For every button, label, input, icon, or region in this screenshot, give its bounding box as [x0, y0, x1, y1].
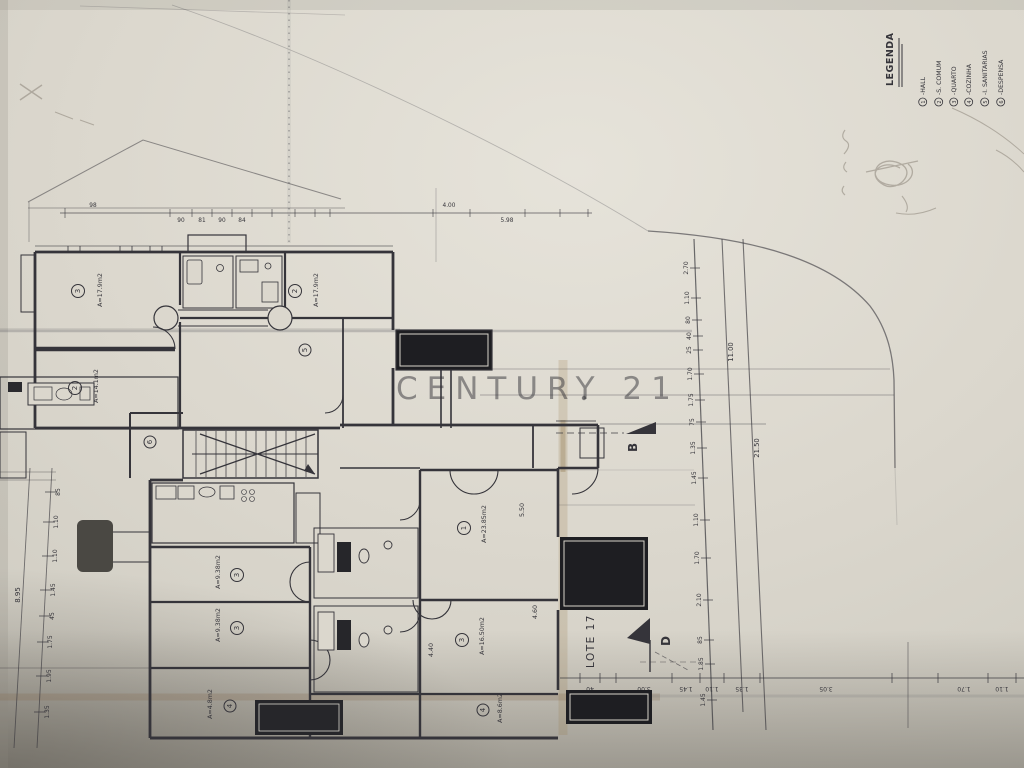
dim-right-12: 2.10 — [696, 593, 703, 607]
dim-right-15: 1.45 — [700, 693, 707, 707]
room-area: A=17.9m2 — [97, 273, 104, 307]
dim-left-0: 85 — [55, 488, 62, 496]
room-area: A=14.1m2 — [93, 369, 100, 403]
section-marker-b-label: B — [626, 443, 640, 452]
dim-top-0: 98 — [89, 203, 97, 209]
balcony-black-right-2 — [566, 690, 652, 724]
dim-top-3: 90 — [218, 218, 226, 224]
dim-top-6: 5.98 — [501, 218, 514, 224]
legend-item-label: -DESPENSA — [998, 59, 1005, 95]
room-area: A=23.85m2 — [481, 505, 488, 543]
dim-left-2: 1.10 — [52, 549, 59, 563]
legend-item-number: 5 — [983, 100, 989, 103]
legend-item-label: -S. COMUM — [936, 61, 943, 96]
dim-left-4: 45 — [49, 612, 56, 620]
dim-bottom-3: 1.10 — [705, 685, 719, 692]
room-number: 3 — [458, 638, 466, 642]
legend-item-number: 1 — [921, 100, 927, 103]
room-number: 2 — [71, 386, 79, 390]
dim-bottom-6: 1.70 — [957, 685, 971, 692]
dim-right-7: 75 — [689, 418, 696, 426]
room-area: A=9.38m2 — [215, 555, 222, 589]
legend-item-label: -QUARTO — [951, 66, 958, 95]
room-number: 2 — [291, 289, 299, 293]
dim-bottom-5: 3.05 — [819, 685, 833, 692]
dim-left-1: 1.10 — [53, 515, 60, 529]
road-dim-1100: 11.00 — [727, 342, 735, 361]
room-number: 1 — [460, 526, 468, 530]
dim-right-3: 40 — [686, 332, 693, 340]
dim-right-13: 85 — [697, 636, 704, 644]
dim-right-1: 1.10 — [684, 291, 691, 305]
dim-right-5: 1.70 — [687, 367, 694, 381]
room-number: 3 — [74, 289, 82, 293]
dim-left-7: 1.35 — [44, 705, 51, 719]
room-number: 3 — [233, 573, 241, 577]
dim-bottom-2: 1.45 — [679, 685, 693, 692]
room-number: 4 — [226, 703, 234, 708]
legend-item-label: -HALL — [920, 76, 927, 95]
room-number: 4 — [479, 707, 487, 712]
dim-top-2: 81 — [198, 218, 206, 224]
room-area: A=9.38m2 — [215, 608, 222, 642]
dim-right-11: 1.70 — [694, 551, 701, 565]
dim-right-4: 25 — [686, 346, 693, 354]
lot-label: LOTE 17 — [585, 614, 597, 668]
dim-left-total: 8.95 — [14, 587, 22, 603]
room-area: A=17.9m2 — [313, 273, 320, 307]
room-area: A=4.8m2 — [207, 689, 214, 719]
dim-left-5: 1.75 — [47, 635, 54, 649]
dim-right-0: 2.70 — [683, 261, 690, 275]
section-marker-d-label: D — [659, 636, 673, 646]
road-dim-2150: 21.50 — [753, 438, 761, 457]
room-area: A=16.50m2 — [479, 617, 486, 655]
dim-left-6: 1.95 — [46, 669, 53, 683]
room-dim: 5.50 — [519, 503, 526, 517]
dim-left-3: 1.45 — [50, 583, 57, 597]
room-dim: 4.60 — [532, 605, 539, 619]
dim-right-14: 1.85 — [698, 657, 705, 671]
entry-canopy — [77, 520, 113, 572]
legend-item-number: 6 — [999, 100, 1005, 103]
dim-right-6: 1.75 — [688, 393, 695, 407]
legend-item-number: 3 — [952, 100, 958, 103]
dim-right-8: 1.35 — [690, 441, 697, 455]
dim-bottom-7: 1.10 — [995, 685, 1009, 692]
dim-right-10: 1.10 — [693, 513, 700, 527]
dim-bottom-4: 1.35 — [735, 685, 749, 692]
balcony-black-bottom — [255, 700, 343, 735]
room-area: A=8.6m2 — [497, 693, 504, 723]
legend-title: LEGENDA — [885, 32, 896, 86]
room-number: 5 — [301, 348, 309, 352]
dim-top-5: 4.00 — [443, 203, 456, 209]
room-dim: 4.40 — [428, 643, 435, 657]
dim-top-1: 90 — [177, 218, 185, 224]
legend-item-label: -I. SANITARIAS — [982, 50, 989, 95]
room-number: 6 — [146, 439, 154, 444]
room-number: 3 — [233, 626, 241, 630]
legend-item-hall: 1 -HALL — [919, 76, 927, 106]
balcony-black-top — [396, 330, 492, 370]
legend-item-number: 2 — [937, 100, 943, 103]
dim-right-2: 80 — [685, 316, 692, 324]
floorplan-photo: 2.70 1.10 80 40 25 1.70 1.75 75 1.35 1.4… — [0, 0, 1024, 768]
balcony-black-right-1 — [560, 537, 648, 610]
floorplan-scan-svg: 2.70 1.10 80 40 25 1.70 1.75 75 1.35 1.4… — [0, 0, 1024, 768]
legend-item-label: -COZINHA — [966, 63, 973, 95]
century21-watermark: CENTURY 21 — [396, 371, 680, 407]
dim-top-4: 84 — [238, 218, 246, 224]
dim-right-9: 1.45 — [691, 471, 698, 485]
legend-item-number: 4 — [967, 100, 973, 103]
